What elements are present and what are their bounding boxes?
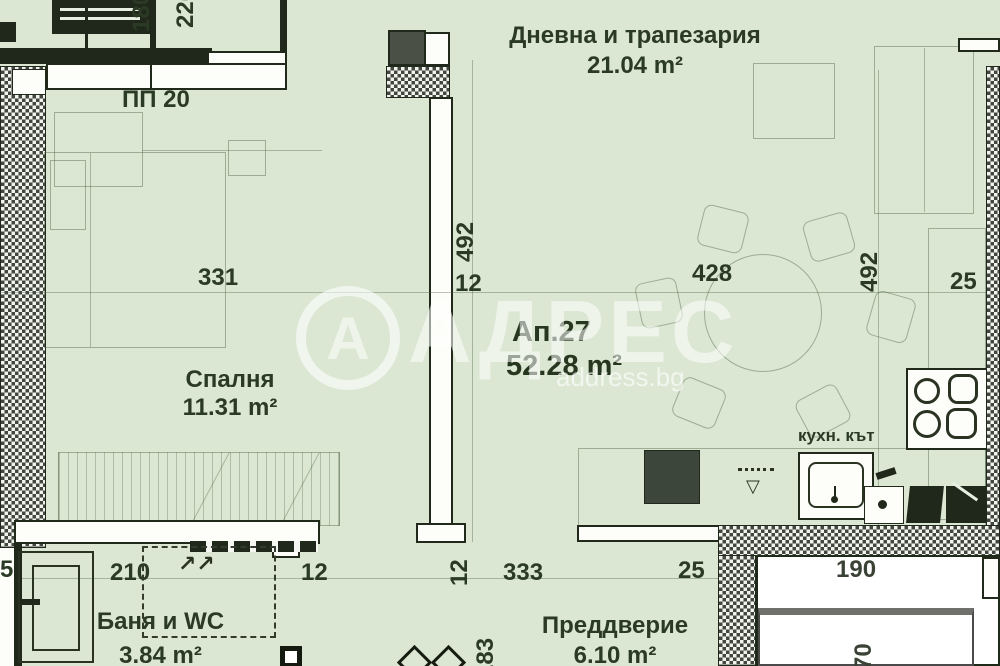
nightstand bbox=[228, 140, 266, 176]
chair bbox=[801, 210, 857, 263]
living-name: Дневна и трапезария bbox=[460, 22, 810, 51]
dim-shaft-depth: 70 bbox=[852, 626, 876, 666]
door-jamb bbox=[280, 646, 302, 666]
wall-shaft-top-hatched bbox=[718, 525, 1000, 557]
kitchen-label: кухн. кът bbox=[798, 426, 875, 446]
wall-right-hatched bbox=[986, 66, 1000, 559]
watermark-logo-letter: А bbox=[326, 304, 369, 373]
dim-hall-width: 333 bbox=[503, 561, 543, 585]
chair bbox=[864, 289, 917, 345]
neighbor-door-line bbox=[85, 0, 88, 52]
kitchen-dark-cabinet bbox=[644, 450, 700, 504]
wall-shaft-left-hatched bbox=[718, 555, 756, 666]
appliance-knob bbox=[878, 500, 887, 509]
bed-line bbox=[90, 153, 91, 347]
burner-icon bbox=[914, 378, 940, 404]
hall-area: 6.10 m² bbox=[505, 642, 725, 666]
bed-pillow bbox=[50, 160, 86, 230]
basin-triangle-icon: ▽ bbox=[746, 476, 760, 497]
dim-right-492: 492 bbox=[858, 222, 882, 292]
watermark-logo-icon: А bbox=[296, 286, 400, 390]
bedroom-area: 11.31 m² bbox=[155, 394, 305, 423]
vent-marks-icon bbox=[738, 468, 774, 471]
column-dark bbox=[388, 30, 426, 66]
chair bbox=[696, 203, 751, 255]
dim-hall-depth: 183 bbox=[474, 608, 498, 666]
floor-plan: 180 220 ПП 20 331 Спалня 11.31 m² Дневна… bbox=[0, 0, 1000, 666]
dim-hall-right: 25 bbox=[678, 559, 705, 583]
bedroom-name: Спалня bbox=[160, 366, 300, 395]
dim-bedroom-width: 331 bbox=[198, 266, 238, 290]
appliance-dark bbox=[906, 486, 944, 523]
wall-left-hatched bbox=[0, 66, 46, 548]
wall-hall-top bbox=[577, 525, 722, 542]
dim-shaft-width: 190 bbox=[836, 558, 876, 582]
shower-tray bbox=[32, 565, 80, 651]
shower-handle bbox=[20, 599, 40, 605]
wall-top-dark bbox=[0, 48, 212, 64]
neighbor-fixture-small bbox=[0, 22, 16, 42]
burner-icon bbox=[946, 408, 977, 439]
dim-bath-12: 12 bbox=[301, 561, 328, 585]
burner-icon bbox=[913, 410, 941, 438]
dim-living-right: 25 bbox=[950, 270, 977, 294]
hall-name: Преддверие bbox=[505, 612, 725, 641]
burner-icon bbox=[948, 374, 978, 404]
dim-220: 220 bbox=[174, 0, 198, 28]
wall-center-flange bbox=[416, 523, 466, 543]
column-white bbox=[424, 32, 450, 66]
label-pp20: ПП 20 bbox=[122, 88, 190, 112]
sink-tap-icon bbox=[831, 496, 838, 503]
column-hatched bbox=[386, 66, 450, 98]
dim-left-edge: 5 bbox=[0, 558, 13, 582]
wall-top-right bbox=[958, 38, 1000, 52]
armchair bbox=[753, 63, 835, 139]
door-leaf-icon bbox=[397, 645, 432, 666]
sofa-line bbox=[924, 48, 925, 212]
door-leaf-icon bbox=[431, 645, 466, 666]
dim-hall-12: 12 bbox=[448, 542, 472, 586]
wall-left-window bbox=[12, 69, 46, 95]
shaft-column bbox=[982, 557, 1000, 599]
vent-arrows-icon: ↗↗ bbox=[178, 552, 215, 577]
bathroom-name: Баня и WC bbox=[88, 608, 233, 637]
bathroom-area: 3.84 m² bbox=[88, 642, 233, 666]
watermark-domain: address.bg bbox=[556, 362, 685, 393]
dim-180: 180 bbox=[130, 0, 154, 32]
wardrobe bbox=[58, 452, 340, 526]
dim-center-492: 492 bbox=[454, 196, 478, 262]
